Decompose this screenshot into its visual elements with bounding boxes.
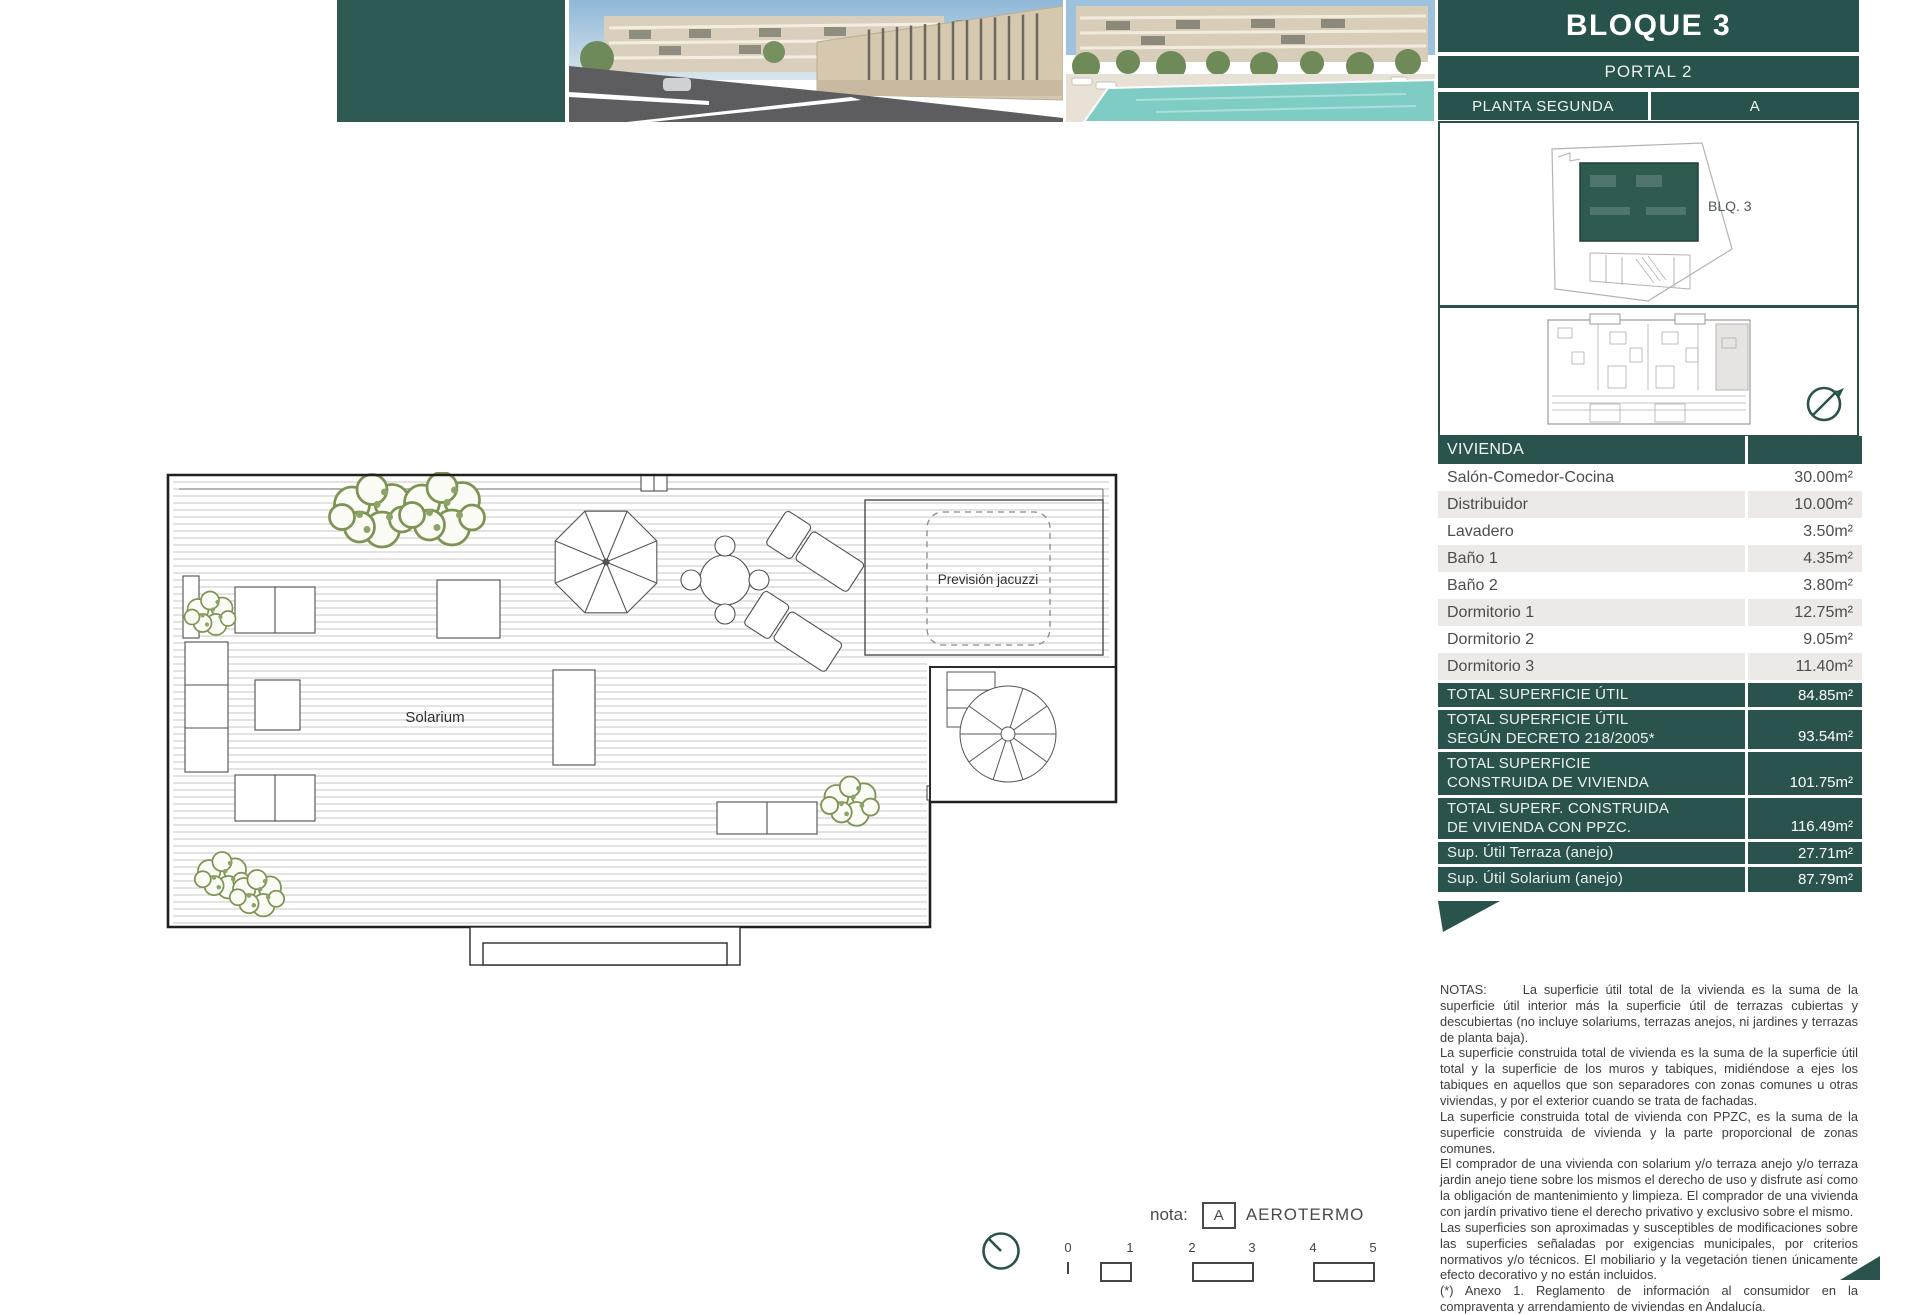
- notes-label: NOTAS:: [1440, 982, 1487, 997]
- floor-cell: PLANTA SEGUNDA: [1438, 92, 1648, 120]
- aerotermo-note: nota: A AEROTERMO: [1150, 1202, 1364, 1228]
- total-label: Sup. Útil Solarium (anejo): [1447, 870, 1623, 889]
- row-value: 12.75m²: [1736, 604, 1862, 622]
- row-value: 11.40m²: [1736, 658, 1862, 676]
- scale-tick-label: 5: [1369, 1240, 1376, 1255]
- row-label: Salón-Comedor-Cocina: [1438, 469, 1736, 487]
- key-plan-drawing: [1440, 308, 1857, 432]
- row-label: Dormitorio 1: [1438, 604, 1736, 622]
- notes-paragraph: (*) Anexo 1. Reglamento de información a…: [1440, 1283, 1858, 1315]
- scale-tick-label: 2: [1188, 1240, 1195, 1255]
- table-row: Dormitorio 3 11.40m²: [1438, 653, 1862, 680]
- photo-entrance-render: [569, 0, 1063, 122]
- portal-band: PORTAL 2: [1438, 56, 1859, 88]
- scale-tick-label: 0: [1064, 1240, 1071, 1255]
- row-value: 3.80m²: [1736, 577, 1862, 595]
- total-label: TOTAL SUPERFICIE CONSTRUIDA DE VIVIENDA: [1447, 755, 1685, 793]
- total-label: TOTAL SUPERFICIE ÚTIL SEGÚN DECRETO 218/…: [1447, 711, 1685, 749]
- notes-paragraph: NOTAS:La superficie útil total de la viv…: [1440, 982, 1858, 1045]
- table-square: [437, 580, 500, 638]
- row-label: Distribuidor: [1438, 496, 1736, 514]
- total-value: 116.49m²: [1736, 798, 1862, 839]
- key-plan-box: [1438, 305, 1859, 437]
- highlighted-unit: [1716, 324, 1748, 390]
- aerotermo-label: AEROTERMO: [1246, 1205, 1365, 1225]
- table-row: Dormitorio 2 9.05m²: [1438, 626, 1862, 653]
- row-label: Dormitorio 2: [1438, 631, 1736, 649]
- parasol-icon: [555, 511, 657, 613]
- total-row: Sup. Útil Solarium (anejo) 87.79m²: [1438, 867, 1862, 892]
- spiral-stair: [930, 667, 1116, 802]
- total-row: TOTAL SUPERF. CONSTRUIDA DE VIVIENDA CON…: [1438, 798, 1862, 839]
- total-value: 27.71m²: [1736, 842, 1862, 864]
- blq-label: BLQ. 3: [1708, 198, 1752, 214]
- photo-pool-render: [1066, 0, 1435, 122]
- table-corner-wedge: [1438, 901, 1500, 932]
- block-title: BLOQUE 3: [1566, 9, 1731, 43]
- aerotermo-key-box: A: [1202, 1202, 1236, 1229]
- notes-block: NOTAS:La superficie útil total de la viv…: [1440, 982, 1858, 1315]
- total-row: TOTAL SUPERFICIE ÚTIL 84.85m²: [1438, 683, 1862, 707]
- total-row: TOTAL SUPERFICIE CONSTRUIDA DE VIVIENDA …: [1438, 752, 1862, 795]
- row-value: 4.35m²: [1736, 550, 1862, 568]
- notes-paragraph: La superficie construida total de vivien…: [1440, 1045, 1858, 1108]
- table-column-divider: [1745, 436, 1748, 892]
- row-label: Baño 1: [1438, 550, 1736, 568]
- brand-color-block: [337, 0, 565, 122]
- table-header-label: VIVIENDA: [1438, 441, 1524, 459]
- table-row: Baño 1 4.35m²: [1438, 545, 1862, 572]
- row-label: Baño 2: [1438, 577, 1736, 595]
- areas-table: VIVIENDA Salón-Comedor-Cocina 30.00m² Di…: [1438, 436, 1862, 892]
- solarium-label: Solarium: [405, 709, 464, 726]
- table-header-band: VIVIENDA: [1438, 436, 1862, 464]
- notes-paragraph: La superficie construida total de vivien…: [1440, 1109, 1858, 1157]
- bottom-steps: [470, 927, 740, 965]
- total-label: Sup. Útil Terraza (anejo): [1447, 844, 1613, 863]
- row-value: 9.05m²: [1736, 631, 1862, 649]
- table-row: Salón-Comedor-Cocina 30.00m²: [1438, 464, 1862, 491]
- north-arrow-icon: [1808, 388, 1844, 420]
- site-plan-box: BLQ. 3: [1438, 121, 1859, 307]
- row-value: 3.50m²: [1736, 523, 1862, 541]
- nota-label: nota:: [1150, 1205, 1188, 1225]
- total-label: TOTAL SUPERFICIE ÚTIL: [1447, 686, 1628, 705]
- jacuzzi-label: Previsión jacuzzi: [938, 572, 1039, 587]
- unit-label: A: [1750, 98, 1761, 115]
- notes-paragraph: El comprador de una vivienda con solariu…: [1440, 1156, 1858, 1219]
- site-plan-drawing: BLQ. 3: [1440, 123, 1857, 305]
- row-label: Lavadero: [1438, 523, 1736, 541]
- block-title-band: BLOQUE 3: [1438, 0, 1859, 52]
- floor-plan: Solarium Previsión jacuzzi: [165, 472, 1123, 972]
- total-value: 87.79m²: [1736, 867, 1862, 892]
- unit-cell: A: [1651, 92, 1859, 120]
- portal-label: PORTAL 2: [1605, 62, 1693, 82]
- scale-bar: 0 1 2 3 4 5: [1040, 1240, 1400, 1280]
- total-row: TOTAL SUPERFICIE ÚTIL SEGÚN DECRETO 218/…: [1438, 710, 1862, 749]
- floor-label: PLANTA SEGUNDA: [1472, 98, 1614, 115]
- scale-tick-label: 1: [1126, 1240, 1133, 1255]
- total-value: 84.85m²: [1736, 683, 1862, 707]
- table-row: Baño 2 3.80m²: [1438, 572, 1862, 599]
- plan-sheet-page: { "header": { "block_title": "BLOQUE 3",…: [0, 0, 1920, 1280]
- total-value: 101.75m²: [1736, 752, 1862, 795]
- notes-paragraph: Las superficies son aproximadas y suscep…: [1440, 1220, 1858, 1283]
- table-row: Dormitorio 1 12.75m²: [1438, 599, 1862, 626]
- scale-tick-label: 3: [1248, 1240, 1255, 1255]
- table-row: Distribuidor 10.00m²: [1438, 491, 1862, 518]
- scale-tick-label: 4: [1309, 1240, 1316, 1255]
- row-value: 10.00m²: [1736, 496, 1862, 514]
- total-row: Sup. Útil Terraza (anejo) 27.71m²: [1438, 842, 1862, 864]
- total-value: 93.54m²: [1736, 710, 1862, 749]
- table-row: Lavadero 3.50m²: [1438, 518, 1862, 545]
- total-label: TOTAL SUPERF. CONSTRUIDA DE VIVIENDA CON…: [1447, 800, 1685, 838]
- sofa: [185, 642, 228, 772]
- row-label: Dormitorio 3: [1438, 658, 1736, 676]
- row-value: 30.00m²: [1736, 469, 1862, 487]
- floor-plan-drawing: Solarium Previsión jacuzzi: [165, 472, 1123, 972]
- north-circle-icon: [979, 1229, 1023, 1273]
